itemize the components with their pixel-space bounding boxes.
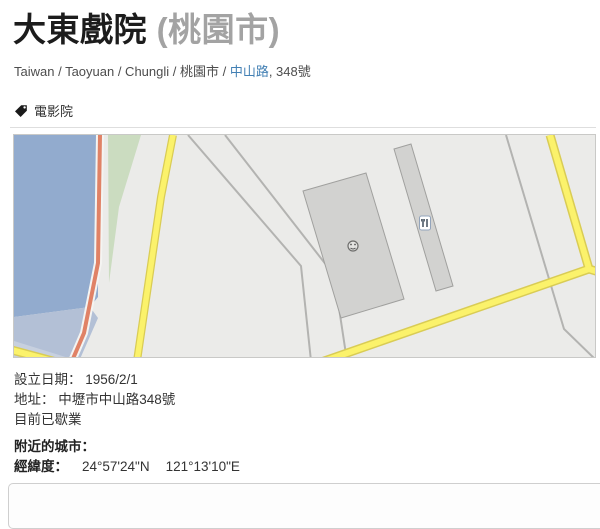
page-title-main: 大東戲院 — [13, 11, 147, 48]
address-label: 地址： — [14, 392, 55, 407]
established-value: 1956/2/1 — [85, 372, 138, 387]
page-title-suffix: (桃園市) — [157, 11, 280, 48]
breadcrumb: Taiwan / Taoyuan / Chungli / 桃園市 / 中山路, … — [14, 61, 600, 80]
details-block: 設立日期： 1956/2/1 地址： 中壢市中山路348號 目前已歇業 — [14, 370, 600, 430]
breadcrumb-text-after: , 348號 — [269, 64, 311, 79]
coordinates-row: 經緯度：24°57'24"N121°13'10"E — [14, 457, 600, 477]
map-water-area — [14, 135, 98, 317]
breadcrumb-text-before: Taiwan / Taoyuan / Chungli / 桃園市 / — [14, 64, 230, 79]
tag-icon — [14, 104, 28, 118]
status-text: 目前已歇業 — [14, 410, 600, 430]
nearby-cities-label: 附近的城市： — [14, 437, 600, 457]
coordinates-latitude: 24°57'24"N — [82, 459, 150, 474]
coordinates-longitude: 121°13'10"E — [166, 459, 240, 474]
theater-face-marker — [348, 241, 358, 251]
breadcrumb-street-link[interactable]: 中山路 — [230, 64, 269, 79]
address-row: 地址： 中壢市中山路348號 — [14, 390, 600, 410]
map-canvas[interactable] — [13, 134, 596, 358]
restaurant-marker — [420, 216, 431, 230]
page-title: 大東戲院 (桃園市) — [13, 10, 600, 50]
page: 大東戲院 (桃園市) Taiwan / Taoyuan / Chungli / … — [0, 0, 600, 529]
section-divider — [10, 127, 596, 128]
established-label: 設立日期： — [14, 372, 82, 387]
category-tag-row: 電影院 — [14, 101, 600, 120]
established-row: 設立日期： 1956/2/1 — [14, 370, 600, 390]
coordinates-label: 經緯度： — [14, 459, 68, 474]
bottom-panel — [8, 483, 600, 529]
category-tag-label: 電影院 — [34, 101, 73, 120]
address-value: 中壢市中山路348號 — [58, 392, 175, 407]
